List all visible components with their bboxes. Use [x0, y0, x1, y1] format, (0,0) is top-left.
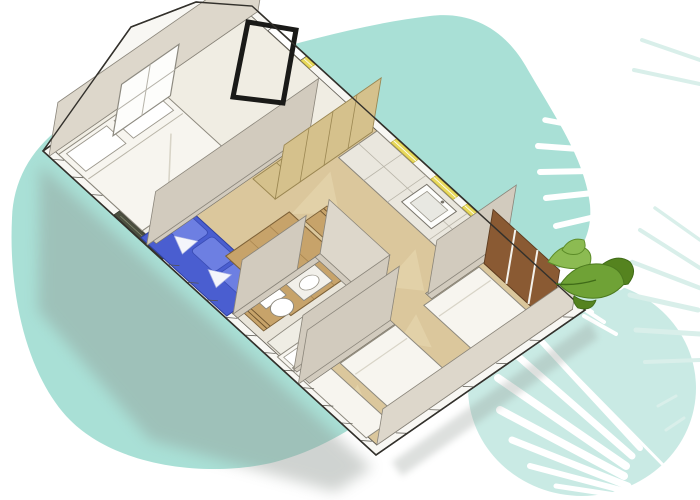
floorplan-scene — [0, 0, 700, 500]
